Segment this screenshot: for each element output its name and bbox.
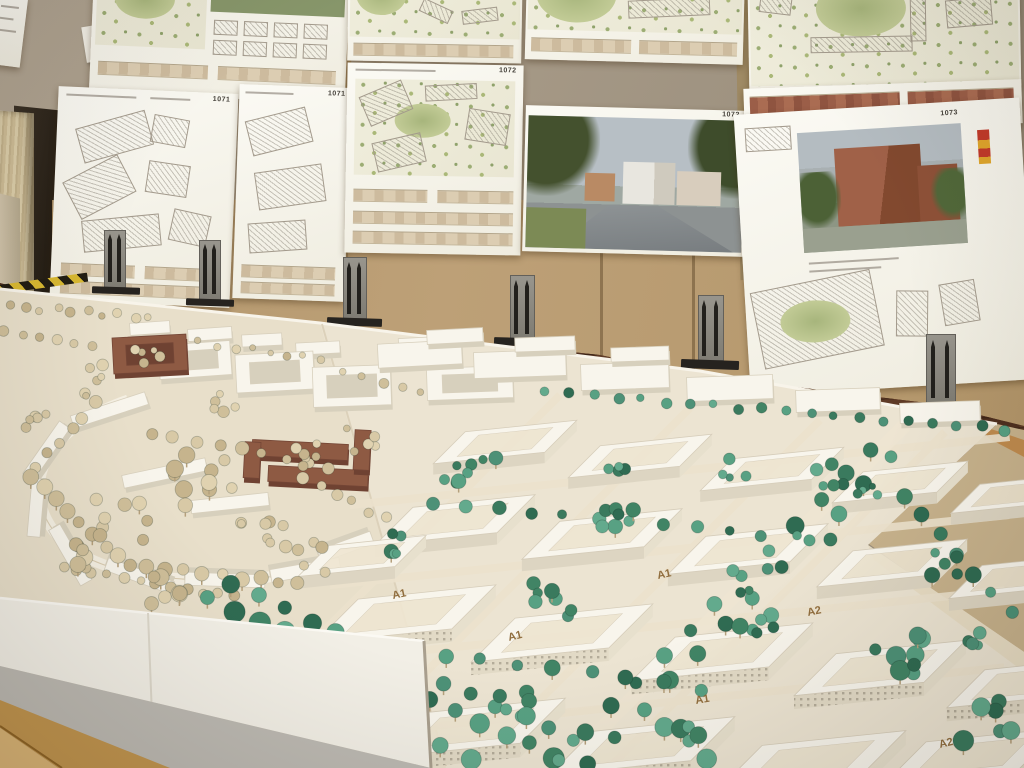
tree-icon [459,500,472,513]
tree-icon [564,388,574,398]
tree-icon [292,544,304,556]
tree-icon [70,339,78,347]
tree-icon [451,474,466,489]
tree-icon [972,698,991,717]
tree-icon [88,342,97,351]
tree-icon [885,451,897,463]
white-building [427,327,485,349]
tree-icon [339,368,346,375]
tree-icon [279,540,292,553]
tree-icon [718,616,733,631]
tree-icon [52,334,62,344]
tree-icon [855,412,865,422]
tree-icon [950,551,963,564]
tree-icon [177,564,189,576]
tree-icon [215,440,226,451]
tree-icon [828,479,840,491]
tree-icon [432,737,448,753]
tree-icon [224,601,245,622]
tree-icon [741,471,751,481]
tree-icon [732,618,748,634]
tree-icon [172,586,187,601]
tree-icon [914,507,929,522]
tree-icon [684,624,697,637]
tree-icon [733,404,743,414]
white-building [242,333,284,352]
tree-icon [544,583,559,598]
tree-icon [636,394,644,402]
tree-icon [6,301,15,310]
white-building [611,346,671,367]
tree-icon [358,373,365,380]
tree-icon [132,496,146,510]
tree-icon [291,576,304,589]
tree-icon [904,416,914,426]
tree-icon [952,569,963,580]
tree-icon [879,417,888,426]
tree-icon [97,359,109,371]
tree-icon [320,567,330,577]
tree-icon [112,308,121,317]
tree-icon [214,343,221,350]
tree-icon [897,489,913,505]
tree-icon [853,489,862,498]
tree-icon [124,559,137,572]
tree-icon [829,412,837,420]
tree-icon [0,326,9,337]
tree-icon [76,412,88,424]
tree-icon [1006,606,1019,619]
tree-icon [869,483,875,489]
tree-icon [151,347,157,353]
tree-icon [493,689,507,703]
tree-icon [137,534,148,545]
white-building [515,336,577,357]
tree-icon [577,724,594,741]
tree-icon [313,440,321,448]
tree-icon [709,400,717,408]
tree-icon [691,521,703,533]
tree-icon [191,436,203,448]
tree-icon [200,590,214,604]
brick-building [112,334,189,379]
tree-icon [347,496,356,505]
tree-icon [808,409,817,418]
tree-icon [656,648,672,664]
tree-icon [626,502,641,517]
tree-icon [965,567,981,583]
tree-icon [250,345,256,351]
tree-icon [237,519,245,527]
tree-icon [166,460,184,478]
tree-icon [924,567,940,583]
tree-icon [23,469,39,485]
tree-icon [752,627,763,638]
tree-icon [831,506,847,522]
tree-icon [139,358,149,368]
exhibition-photo: 1071 1071 [0,0,1024,768]
tree-icon [755,614,766,625]
tree-icon [343,425,350,432]
tree-icon [298,461,308,471]
tree-icon [55,304,63,312]
tree-icon [603,697,620,714]
tree-icon [278,601,292,615]
tree-icon [685,399,695,409]
tree-icon [540,387,549,396]
tree-icon [142,515,153,526]
tree-icon [489,451,503,465]
tree-icon [131,313,141,323]
tree-icon [552,754,564,766]
tree-icon [392,549,400,557]
tree-icon [973,626,986,639]
tree-icon [83,392,90,399]
tree-icon [604,464,614,474]
tree-icon [500,704,512,716]
tree-icon [235,441,249,455]
tree-icon [35,333,44,342]
tree-icon [93,529,107,543]
tree-icon [723,453,735,465]
model-block-label: A1 [694,693,710,707]
tree-icon [144,314,151,321]
tree-icon [33,413,43,423]
tree-icon [529,595,543,609]
tree-icon [690,727,707,744]
tree-icon [985,587,995,597]
tree-icon [814,492,828,506]
tree-icon [254,570,269,585]
tree-icon [278,520,288,530]
tree-icon [54,438,64,448]
tree-icon [873,490,882,499]
tree-icon [775,560,788,573]
tree-icon [85,363,94,372]
tree-icon [615,462,624,471]
tree-icon [637,703,651,717]
tree-icon [48,491,64,507]
tree-icon [863,443,878,458]
tree-icon [201,474,217,490]
tree-icon [439,649,454,664]
tree-icon [219,455,230,466]
tree-icon [175,481,192,498]
tree-icon [763,545,775,557]
tree-icon [222,575,240,593]
tree-icon [474,653,486,665]
tree-icon [579,756,595,768]
tree-icon [282,455,291,464]
tree-icon [586,665,599,678]
tree-icon [453,461,462,470]
tree-icon [42,410,50,418]
tree-icon [194,566,208,580]
tree-icon [819,481,828,490]
tree-icon [37,479,53,495]
tree-icon [727,564,739,576]
tree-icon [226,483,237,494]
tree-icon [657,518,669,530]
tree-icon [436,676,451,691]
tree-icon [147,429,158,440]
tree-icon [19,331,27,339]
tree-icon [464,687,477,700]
tree-icon [1002,721,1020,739]
tree-icon [608,519,623,534]
tree-icon [810,463,823,476]
tree-icon [521,693,536,708]
tree-icon [939,558,950,569]
tree-icon [178,498,193,513]
tree-icon [364,508,374,518]
tree-icon [470,714,490,734]
tree-icon [232,345,241,354]
tree-icon [544,660,560,676]
tree-icon [332,489,343,500]
tree-icon [379,378,389,388]
tree-icon [439,474,449,484]
tree-icon [42,448,52,458]
tree-icon [317,356,325,364]
tree-icon [178,447,195,464]
tree-icon [745,586,753,594]
tree-icon [90,493,103,506]
tree-icon [119,572,130,583]
tree-icon [60,503,75,518]
tree-icon [768,622,779,633]
tree-icon [966,637,979,650]
tree-icon [542,721,556,735]
tree-icon [661,398,672,409]
tree-icon [951,421,961,431]
tree-icon [697,749,717,768]
tree-icon [417,389,424,396]
tree-icon [257,449,266,458]
tree-icon [526,508,538,520]
tree-icon [907,658,920,671]
tree-icon [291,443,302,454]
tree-icon [316,541,328,553]
tree-icon [216,390,223,397]
tree-icon [557,510,566,519]
architectural-model: A1 A1 A1 A2 A1 A2 [0,0,1024,768]
tree-icon [26,415,34,423]
tree-icon [824,533,837,546]
tree-icon [608,731,621,744]
tree-icon [596,520,609,533]
tree-icon [931,548,940,557]
tree-icon [690,646,706,662]
tree-icon [268,350,274,356]
tree-icon [350,447,358,455]
tree-icon [613,509,624,520]
tree-icon [59,562,69,572]
tree-icon [934,527,948,541]
tree-icon [825,458,838,471]
tree-icon [426,497,439,510]
tree-icon [299,561,308,570]
tree-icon [479,455,488,464]
tree-icon [21,303,31,313]
tree-icon [159,591,172,604]
tree-icon [283,352,291,360]
tree-icon [299,352,305,358]
tree-icon [448,703,462,717]
tree-icon [657,674,672,689]
tree-icon [148,571,160,583]
tree-icon [260,518,271,529]
tree-icon [369,432,379,442]
tree-icon [89,395,102,408]
white-building [687,374,775,406]
tree-icon [130,345,140,355]
tree-icon [618,670,633,685]
tree-icon [99,313,106,320]
tree-icon [492,501,506,515]
tree-icon [782,406,791,415]
tree-icon [297,472,309,484]
tree-icon [73,517,84,528]
tree-icon [110,548,126,564]
tree-icon [804,535,815,546]
tree-icon [251,587,266,602]
tree-icon [85,306,94,315]
tree-icon [317,481,326,490]
tree-icon [590,390,600,400]
tree-icon [102,570,110,578]
tree-icon [736,587,746,597]
tree-icon [756,402,767,413]
tree-icon [565,604,577,616]
tree-icon [68,423,79,434]
tree-icon [461,749,481,768]
tree-icon [70,556,86,572]
tree-icon [512,660,523,671]
tree-icon [517,707,535,725]
tree-icon [522,736,536,750]
tree-icon [137,577,145,585]
tree-icon [35,308,42,315]
tree-icon [953,730,974,751]
tree-icon [718,470,727,479]
tree-icon [218,406,230,418]
tree-icon [98,373,105,380]
tree-icon [725,526,734,535]
tree-icon [762,563,773,574]
tree-icon [614,393,625,404]
tree-icon [977,420,988,431]
tree-icon [928,418,938,428]
tree-icon [999,425,1010,436]
tree-icon [870,644,882,656]
tree-icon [77,544,89,556]
tree-icon [381,512,391,522]
tree-icon [793,531,802,540]
tree-icon [399,383,407,391]
tree-icon [909,627,926,644]
tree-icon [99,512,111,524]
tree-icon [166,431,178,443]
tree-icon [65,307,75,317]
tree-icon [231,403,240,412]
tree-icon [498,727,516,745]
tree-icon [194,337,201,344]
tree-icon [890,660,910,680]
tree-icon [266,538,275,547]
tree-icon [118,498,132,512]
tree-icon [210,404,219,413]
tree-icon [755,530,766,541]
tree-icon [273,578,283,588]
tree-icon [322,462,334,474]
tree-icon [312,452,320,460]
tree-icon [707,596,722,611]
tree-icon [145,597,159,611]
tree-icon [387,529,397,539]
